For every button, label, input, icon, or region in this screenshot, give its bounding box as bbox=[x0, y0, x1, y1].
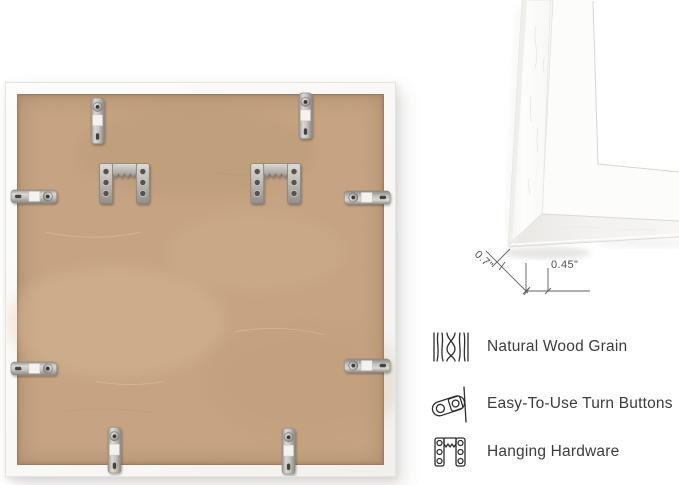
frame-corner-detail: 0.7" 0.45" bbox=[420, 0, 679, 310]
board-texture bbox=[6, 94, 395, 465]
product-image: 0.7" 0.45" Natur bbox=[0, 0, 679, 485]
depth-dimension-label: 0.7" bbox=[472, 249, 495, 272]
feature-row-wood-grain: Natural Wood Grain bbox=[428, 325, 627, 369]
feature-label: Easy-To-Use Turn Buttons bbox=[487, 395, 673, 413]
frame-back-view bbox=[5, 82, 396, 477]
feature-label: Natural Wood Grain bbox=[487, 338, 627, 356]
turn-button-right-lower bbox=[344, 359, 390, 372]
turn-button-icon bbox=[428, 382, 472, 426]
hanging-hardware-icon bbox=[428, 430, 472, 474]
turn-button-top-right bbox=[299, 93, 312, 139]
turn-button-bottom-left bbox=[108, 427, 121, 473]
frame-back-hardware-layer bbox=[6, 83, 395, 476]
wood-grain-icon bbox=[428, 325, 472, 369]
feature-row-turn-buttons: Easy-To-Use Turn Buttons bbox=[428, 382, 673, 426]
artwork-area bbox=[593, 0, 679, 171]
turn-button-right-upper bbox=[344, 191, 390, 204]
feature-label: Hanging Hardware bbox=[487, 443, 619, 461]
turn-button-bottom-right bbox=[282, 428, 295, 474]
face-width-dimension-label: 0.45" bbox=[551, 259, 578, 271]
turn-button-left-lower bbox=[11, 362, 57, 375]
feature-row-hanging-hardware: Hanging Hardware bbox=[428, 430, 619, 474]
corner-shadow bbox=[503, 247, 591, 259]
turn-button-top-left bbox=[91, 98, 104, 144]
turn-button-left-upper bbox=[11, 190, 57, 203]
